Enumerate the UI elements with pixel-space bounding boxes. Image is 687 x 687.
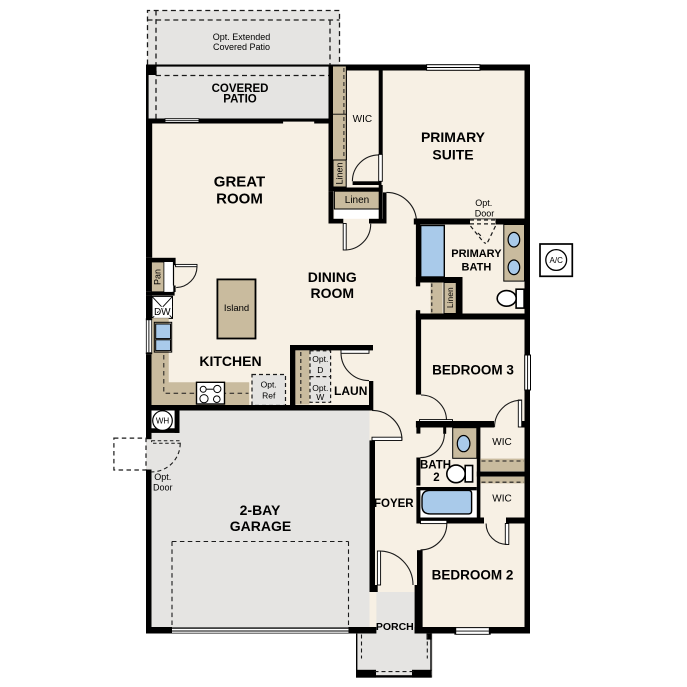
- svg-text:Linen: Linen: [334, 162, 344, 184]
- svg-text:Door: Door: [475, 208, 495, 218]
- svg-text:PRIMARY: PRIMARY: [451, 248, 502, 260]
- svg-text:LAUN: LAUN: [334, 384, 367, 398]
- svg-text:Linen: Linen: [445, 287, 455, 308]
- svg-text:Opt.: Opt.: [154, 472, 171, 482]
- svg-text:Opt.: Opt.: [261, 380, 277, 390]
- svg-text:PORCH: PORCH: [376, 621, 414, 633]
- svg-text:ROOM: ROOM: [311, 285, 355, 301]
- svg-text:Island: Island: [224, 303, 249, 314]
- svg-text:PRIMARY: PRIMARY: [421, 129, 486, 145]
- svg-text:2-BAY: 2-BAY: [240, 502, 281, 518]
- svg-text:DW: DW: [154, 307, 171, 318]
- svg-text:Linen: Linen: [345, 195, 369, 206]
- svg-text:ROOM: ROOM: [216, 191, 263, 208]
- svg-text:PATIO: PATIO: [223, 94, 256, 106]
- svg-text:Door: Door: [153, 482, 173, 492]
- svg-text:BATH: BATH: [462, 262, 492, 274]
- svg-text:WH: WH: [156, 417, 170, 426]
- svg-text:DINING: DINING: [308, 269, 357, 285]
- svg-text:BATH: BATH: [420, 460, 451, 472]
- svg-text:Opt.: Opt.: [312, 354, 328, 364]
- svg-text:WIC: WIC: [492, 437, 511, 448]
- svg-text:Opt. Extended: Opt. Extended: [213, 32, 271, 42]
- svg-text:SUITE: SUITE: [432, 146, 473, 162]
- svg-text:Ref: Ref: [262, 391, 276, 401]
- svg-text:KITCHEN: KITCHEN: [199, 353, 261, 369]
- svg-text:FOYER: FOYER: [374, 498, 414, 510]
- svg-text:BEDROOM 2: BEDROOM 2: [432, 568, 514, 583]
- svg-text:GARAGE: GARAGE: [230, 518, 291, 534]
- svg-text:WIC: WIC: [353, 114, 372, 125]
- svg-text:W: W: [316, 392, 324, 402]
- svg-text:D: D: [317, 365, 323, 375]
- svg-text:Covered Patio: Covered Patio: [213, 42, 270, 52]
- svg-text:GREAT: GREAT: [214, 174, 265, 191]
- svg-text:Opt.: Opt.: [475, 198, 492, 208]
- svg-text:Pan: Pan: [153, 269, 163, 285]
- svg-text:2: 2: [433, 472, 439, 484]
- svg-text:BEDROOM 3: BEDROOM 3: [432, 363, 514, 378]
- svg-text:A/C: A/C: [550, 256, 564, 265]
- svg-text:WIC: WIC: [492, 494, 511, 505]
